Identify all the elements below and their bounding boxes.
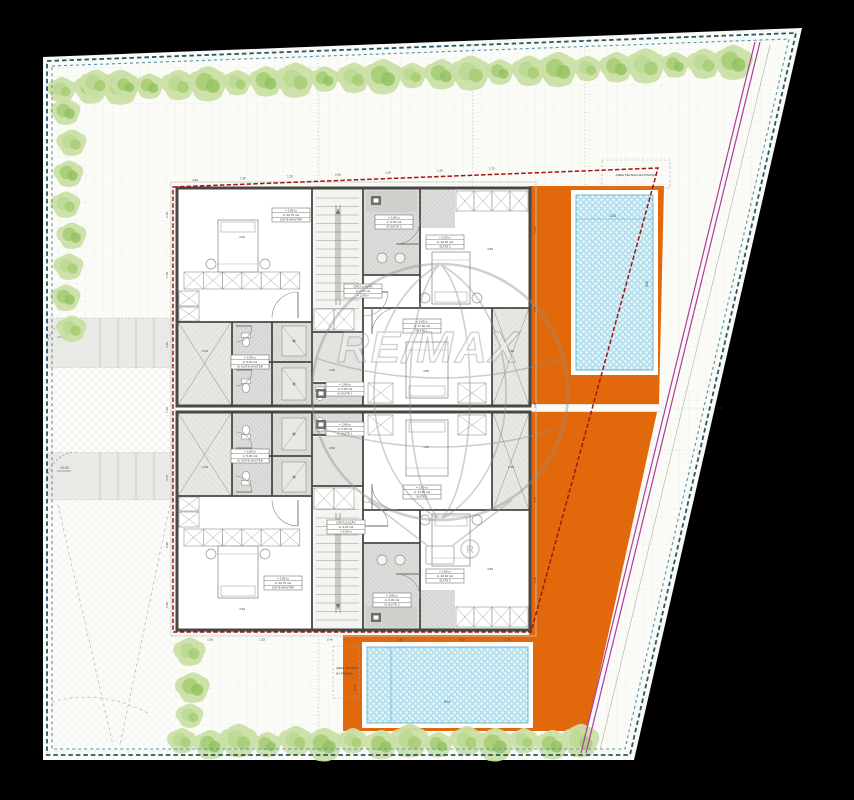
room-label: = 2.80 mA: 5.00 m2IS SUITE MASTER bbox=[231, 355, 269, 369]
dimension-text: 4.90 bbox=[239, 235, 245, 239]
room-label-line: IS SUITE MASTER bbox=[237, 365, 264, 369]
room-label-line: IS SUITE 1 bbox=[337, 392, 352, 396]
dimension-text: 1.10 bbox=[533, 227, 537, 233]
registered-mark: R bbox=[466, 544, 474, 556]
dimension-text: 2.00 bbox=[202, 465, 208, 469]
room-label-line: SUITE 2 bbox=[439, 579, 451, 583]
hatched-turning-area bbox=[47, 500, 173, 755]
room-label-line: = 2.80 m bbox=[285, 208, 297, 212]
room-label-line: = 2.80 m bbox=[439, 235, 451, 239]
dimension-text: 2.60 bbox=[329, 446, 335, 450]
level-marker: +0.00 bbox=[60, 466, 69, 470]
dimension-text: 1.50 bbox=[533, 402, 537, 408]
room-label-line: IS SUITE 2 bbox=[386, 225, 401, 229]
stair-hall bbox=[313, 497, 362, 629]
room-label-line: A: 5.00 m2 bbox=[243, 454, 258, 458]
room-label-line: = 2.80 m bbox=[244, 355, 256, 359]
side-table-icon bbox=[260, 259, 270, 269]
room-label: = 2.80 mA: 5.00 m2IS SUITE MASTER bbox=[231, 449, 269, 463]
room-label-line: = 2.80 m bbox=[439, 569, 451, 573]
dimension-text: 1.70 bbox=[165, 272, 169, 278]
room-label-line: = 2.80 m bbox=[244, 449, 256, 453]
room-label-line: A: 3.60 m2 bbox=[338, 387, 353, 391]
room-label-line: A: 17.00 m2 bbox=[414, 490, 431, 494]
room-label-line: = 2.80 m bbox=[386, 593, 398, 597]
washbasin-icon bbox=[395, 555, 405, 565]
room-label: = 2.80 mA: 3.60 m2IS SUITE 1 bbox=[326, 382, 364, 396]
dimension-text: 4.10 bbox=[165, 342, 169, 348]
washbasin-icon bbox=[377, 253, 387, 263]
room-label-line: = 2.80 m bbox=[277, 576, 289, 580]
room-label-line: A: 6.00 m2 bbox=[387, 220, 402, 224]
dimension-text: 4.50 bbox=[487, 567, 493, 571]
dimension-text: 2.80 bbox=[165, 542, 169, 548]
hatched-strip bbox=[47, 368, 173, 452]
dimension-text: 2.40 bbox=[335, 172, 341, 176]
room-label-line: IS SUITE MASTER bbox=[237, 459, 264, 463]
dimension-text: 1.75 bbox=[505, 638, 511, 642]
dimension-text: 8.00 bbox=[444, 700, 450, 704]
dimension-text: 1.25 bbox=[287, 174, 293, 178]
dimension-text: 1.50 bbox=[397, 638, 403, 642]
room-label-line: A: 20.40 m2 bbox=[437, 240, 454, 244]
room-label-line: = 2.80 m bbox=[340, 530, 352, 534]
dimension-text: 4.90 bbox=[239, 607, 245, 611]
swimming-pool bbox=[576, 195, 653, 370]
dimension-text: 2.60 bbox=[329, 368, 335, 372]
dimension-text: 1.50 bbox=[207, 638, 213, 642]
dimension-text: 4.75 bbox=[533, 497, 537, 503]
room-label-line: = 2.80 m bbox=[388, 215, 400, 219]
room-label-line: SUITE 2 bbox=[439, 245, 451, 249]
closet bbox=[421, 189, 455, 228]
dimension-text: 3.00 bbox=[610, 214, 616, 218]
side-table-icon bbox=[206, 259, 216, 269]
washbasin-icon bbox=[395, 253, 405, 263]
washbasin-icon bbox=[377, 555, 387, 565]
dimension-text: 1.20 bbox=[437, 168, 443, 172]
room-label-line: CIRCULAÇÃO bbox=[336, 519, 356, 524]
closet bbox=[421, 590, 455, 629]
room-label-line: A: 20.70 m2 bbox=[283, 213, 300, 217]
room-label: = 2.80 mA: 20.40 m2SUITE 2 bbox=[426, 569, 464, 583]
dimension-text: 1.50 bbox=[385, 170, 391, 174]
dimension-text: 1.50 bbox=[165, 602, 169, 608]
dimension-text: 4.50 bbox=[487, 247, 493, 251]
dimension-text: 1.25 bbox=[259, 638, 265, 642]
stair-hall bbox=[313, 189, 362, 321]
room-label-line: A: 3.60 m2 bbox=[338, 427, 353, 431]
room-label-line: = 2.80 m bbox=[339, 382, 351, 386]
dimension-text: 4.20 bbox=[459, 638, 465, 642]
room-label: = 2.80 mA: 20.40 m2SUITE 2 bbox=[426, 235, 464, 249]
room-label-line: SUITE MASTER bbox=[272, 586, 295, 590]
room-label-line: = 2.80 m bbox=[339, 422, 351, 426]
room-label-line: SUITE MASTER bbox=[280, 218, 303, 222]
dimension-text: 4.75 bbox=[165, 475, 169, 481]
dimension-text: 4.90 bbox=[192, 178, 198, 182]
area-tecnica-label: DA PISCINA bbox=[336, 672, 353, 676]
dimension-text: 1.40 bbox=[508, 465, 514, 469]
dimension-text: 1.10 bbox=[165, 212, 169, 218]
site-plan-canvas: +0.00+0.003.008.008.003.00AREA TECNICA D… bbox=[0, 0, 854, 800]
dimension-text: 1.10 bbox=[533, 577, 537, 583]
room-label: = 2.80 mA: 20.70 m2SUITE MASTER bbox=[272, 208, 310, 222]
area-tecnica-label: AREA TECNICA DA PISCINA bbox=[616, 173, 658, 177]
watermark-brand: RE/MAX bbox=[337, 323, 521, 372]
room-label: = 2.80 mA: 20.70 m2SUITE MASTER bbox=[264, 576, 302, 590]
room-label: CIRCULAÇÃOA: 6.20 m2= 2.80 m bbox=[327, 519, 365, 534]
side-table-icon bbox=[260, 549, 270, 559]
dimension-text: 1.75 bbox=[489, 166, 495, 170]
room-label-line: A: 6.20 m2 bbox=[339, 525, 354, 529]
room-label-line: IS SUITE 2 bbox=[384, 603, 399, 607]
room-label: = 2.80 mA: 6.00 m2IS SUITE 2 bbox=[373, 593, 411, 607]
dimension-text: 8.00 bbox=[645, 281, 649, 287]
floor-plan-drawing: +0.00+0.003.008.008.003.00AREA TECNICA D… bbox=[0, 0, 854, 800]
side-table-icon bbox=[206, 549, 216, 559]
room-label-line: A: 20.70 m2 bbox=[275, 581, 292, 585]
dimension-text: 1.45 bbox=[165, 407, 169, 413]
room-label-line: A: 6.00 m2 bbox=[385, 598, 400, 602]
room-label-line: A: 5.00 m2 bbox=[243, 360, 258, 364]
room-label: = 2.80 mA: 6.00 m2IS SUITE 2 bbox=[375, 215, 413, 229]
room-label: = 2.80 mA: 3.60 m2IS SUITE 1 bbox=[326, 422, 364, 436]
dimension-text: 1.35 bbox=[240, 176, 246, 180]
room-label-line: A: 20.40 m2 bbox=[437, 574, 454, 578]
dimension-text: 2.40 bbox=[327, 638, 333, 642]
dimension-text: 3.00 bbox=[353, 685, 357, 691]
dimension-text: 2.00 bbox=[202, 349, 208, 353]
driveway-area: +0.00+0.00 bbox=[47, 318, 173, 755]
closet bbox=[313, 437, 362, 486]
area-tecnica-label: ÁREA TÉCNICA bbox=[336, 665, 358, 670]
